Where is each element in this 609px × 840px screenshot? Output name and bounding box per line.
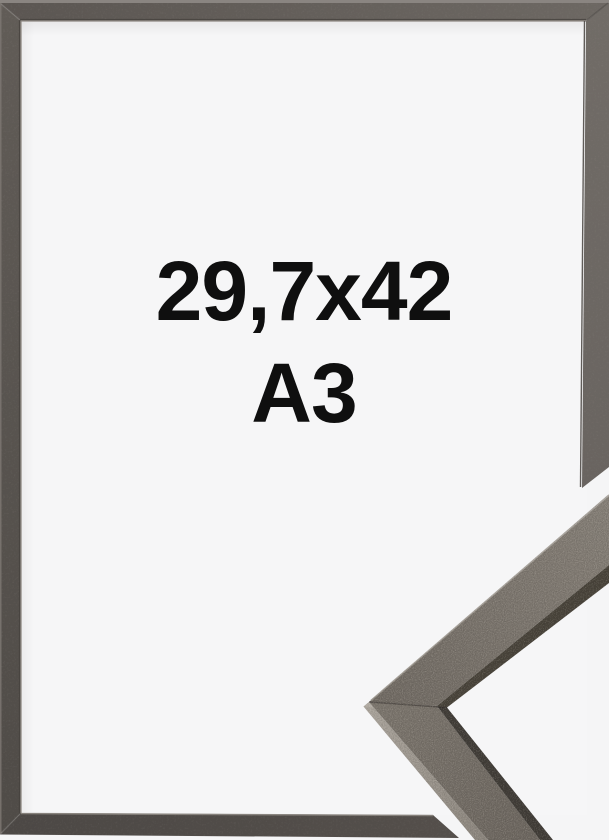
frame-top-rail xyxy=(0,3,609,21)
frame-outer-bevel-top xyxy=(0,0,609,3)
paper-inner-shadow-left xyxy=(22,22,34,812)
frame-product-graphic: 29,7x42 A3 xyxy=(0,0,609,840)
product-image: 29,7x42 A3 xyxy=(0,0,609,840)
frame-bottom-rail xyxy=(0,813,459,838)
size-label-line2: A3 xyxy=(251,346,356,440)
paper-inner-shadow-top xyxy=(22,22,585,36)
frame-right-rail xyxy=(582,3,609,489)
frame-left-rail xyxy=(0,3,21,835)
frame-outer-bevel-left xyxy=(0,3,2,834)
size-label-line1: 29,7x42 xyxy=(156,244,453,338)
